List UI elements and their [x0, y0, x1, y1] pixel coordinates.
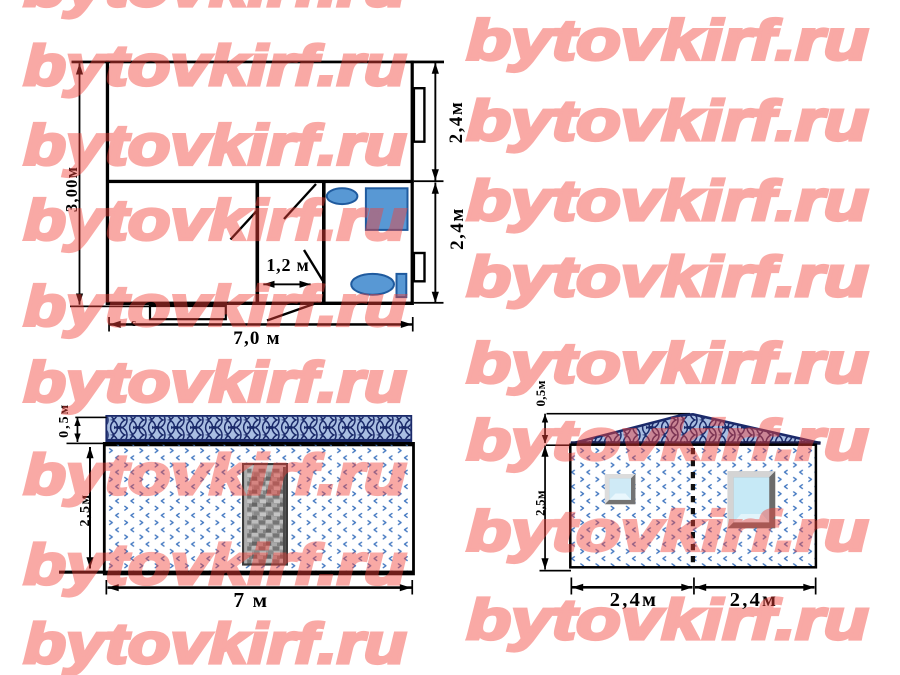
svg-text:bytovkirf.ru: bytovkirf.ru: [24, 0, 407, 19]
svg-text:bytovkirf.ru: bytovkirf.ru: [24, 275, 407, 339]
svg-text:bytovkirf.ru: bytovkirf.ru: [24, 351, 407, 415]
svg-text:bytovkirf.ru: bytovkirf.ru: [24, 443, 407, 507]
svg-text:bytovkirf.ru: bytovkirf.ru: [467, 409, 869, 473]
svg-text:bytovkirf.ru: bytovkirf.ru: [467, 9, 869, 73]
svg-text:1,2 м: 1,2 м: [266, 255, 309, 275]
svg-text:bytovkirf.ru: bytovkirf.ru: [24, 34, 407, 98]
svg-text:bytovkirf.ru: bytovkirf.ru: [467, 245, 869, 309]
svg-text:bytovkirf.ru: bytovkirf.ru: [24, 189, 407, 253]
svg-text:bytovkirf.ru: bytovkirf.ru: [467, 89, 869, 153]
svg-text:bytovkirf.ru: bytovkirf.ru: [467, 169, 869, 233]
svg-text:2,4м: 2,4м: [447, 207, 468, 250]
svg-text:bytovkirf.ru: bytovkirf.ru: [24, 114, 407, 178]
svg-text:bytovkirf.ru: bytovkirf.ru: [467, 500, 869, 564]
svg-text:bytovkirf.ru: bytovkirf.ru: [467, 588, 869, 652]
svg-text:bytovkirf.ru: bytovkirf.ru: [467, 332, 869, 396]
svg-text:2,4м: 2,4м: [446, 101, 467, 144]
svg-text:bytovkirf.ru: bytovkirf.ru: [24, 612, 407, 675]
svg-text:bytovkirf.ru: bytovkirf.ru: [24, 533, 407, 597]
